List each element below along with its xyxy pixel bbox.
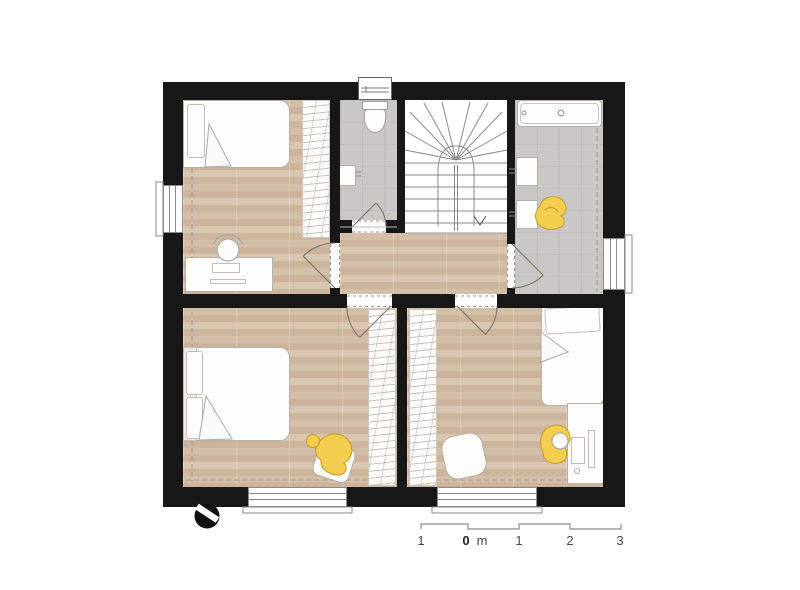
washbasin-wc bbox=[339, 165, 356, 186]
hallway-floor bbox=[340, 233, 507, 294]
wall-exterior-top bbox=[163, 82, 625, 100]
bed-se-pillow bbox=[544, 306, 600, 335]
scale-label-1-left: 1 bbox=[417, 533, 424, 548]
wall-wc-door-jamb-left bbox=[340, 220, 352, 233]
wall-exterior-right bbox=[603, 82, 625, 507]
scale-label-2: 2 bbox=[566, 533, 573, 548]
wall-stair-bathroom-upper bbox=[507, 100, 515, 244]
scale-label-3: 3 bbox=[616, 533, 623, 548]
floor-plan: 1 0 m 1 2 3 bbox=[0, 0, 800, 590]
wall-hall-south-seg2 bbox=[392, 294, 455, 308]
wardrobe-bedroom-nw bbox=[302, 100, 330, 238]
wall-hall-south-seg1 bbox=[340, 294, 347, 308]
bathtub-inner bbox=[520, 103, 599, 124]
wall-nw-room-east-upper bbox=[330, 100, 340, 243]
monitor-se bbox=[588, 430, 595, 468]
scale-unit-label: m bbox=[477, 533, 488, 548]
bed-sw-pillow-1 bbox=[186, 351, 203, 395]
scale-bar-line bbox=[421, 524, 621, 529]
wall-exterior-left bbox=[163, 82, 183, 507]
wardrobe-bedroom-sw bbox=[368, 309, 396, 486]
compass-circle-icon bbox=[195, 504, 220, 529]
monitor-nw bbox=[210, 279, 246, 284]
keyboard-se bbox=[571, 437, 585, 464]
wall-between-south-bedrooms bbox=[397, 308, 407, 487]
staircase-floor bbox=[405, 100, 507, 233]
washbasin-1 bbox=[516, 157, 538, 186]
bed-sw-pillow-2 bbox=[186, 397, 203, 439]
scale-label-zero: 0 bbox=[462, 533, 469, 548]
wardrobe-bedroom-se bbox=[409, 309, 437, 486]
bathroom-floor bbox=[515, 100, 603, 294]
wall-hall-south-seg3 bbox=[497, 294, 603, 308]
scale-label-1-right: 1 bbox=[515, 533, 522, 548]
keyboard-nw bbox=[212, 263, 240, 273]
wall-wc-stair bbox=[397, 100, 405, 233]
wall-nw-room-south bbox=[183, 294, 340, 308]
wall-exterior-bottom bbox=[163, 487, 625, 507]
wall-wc-door-jamb-right bbox=[386, 220, 397, 233]
bed-nw-pillow bbox=[187, 104, 205, 158]
washbasin-2 bbox=[516, 200, 538, 229]
